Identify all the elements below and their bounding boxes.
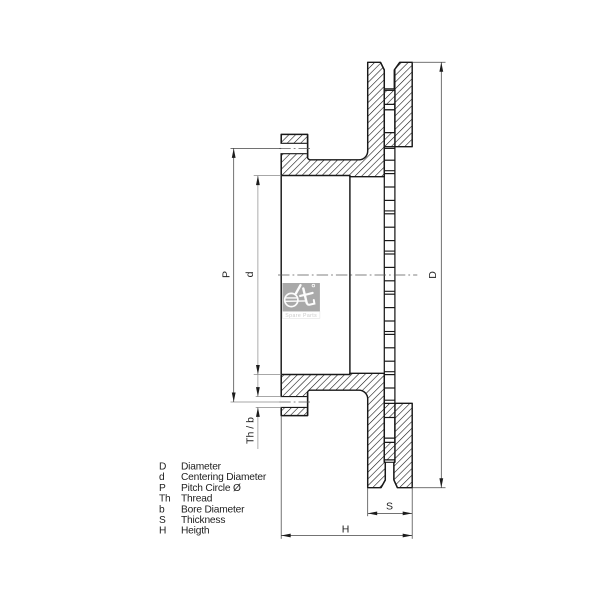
svg-text:D: D <box>427 271 439 279</box>
svg-text:Th / b: Th / b <box>245 417 257 444</box>
svg-text:Thickness: Thickness <box>181 515 225 526</box>
svg-text:Th: Th <box>159 494 171 505</box>
svg-text:Heigth: Heigth <box>181 526 209 537</box>
svg-text:S: S <box>386 501 393 513</box>
svg-text:Diameter: Diameter <box>181 462 222 473</box>
svg-text:d: d <box>159 472 165 483</box>
svg-text:d: d <box>244 271 256 277</box>
svg-text:S: S <box>159 515 166 526</box>
svg-text:Spare Parts: Spare Parts <box>285 313 317 319</box>
svg-text:Pitch Circle Ø: Pitch Circle Ø <box>181 483 241 494</box>
svg-text:Thread: Thread <box>181 494 213 505</box>
svg-text:Bore Diameter: Bore Diameter <box>181 504 245 515</box>
svg-text:P: P <box>220 271 232 278</box>
svg-text:H: H <box>342 524 350 536</box>
svg-text:b: b <box>159 504 165 515</box>
svg-text:Centering Diameter: Centering Diameter <box>181 472 267 483</box>
svg-text:P: P <box>159 483 166 494</box>
svg-text:D: D <box>159 462 166 473</box>
svg-text:H: H <box>159 526 166 537</box>
